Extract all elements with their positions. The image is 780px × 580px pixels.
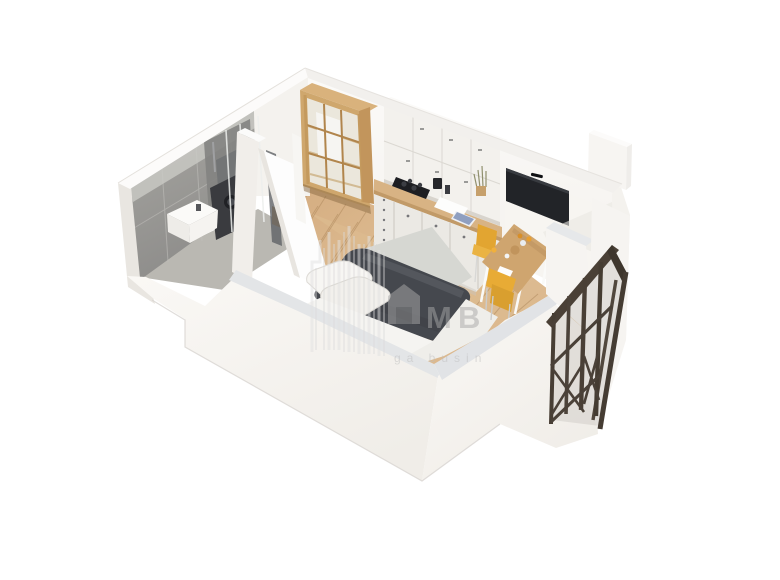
svg-text:ga busin: ga busin [394,351,487,365]
svg-text:M: M [426,300,452,335]
svg-text:B: B [458,300,480,335]
